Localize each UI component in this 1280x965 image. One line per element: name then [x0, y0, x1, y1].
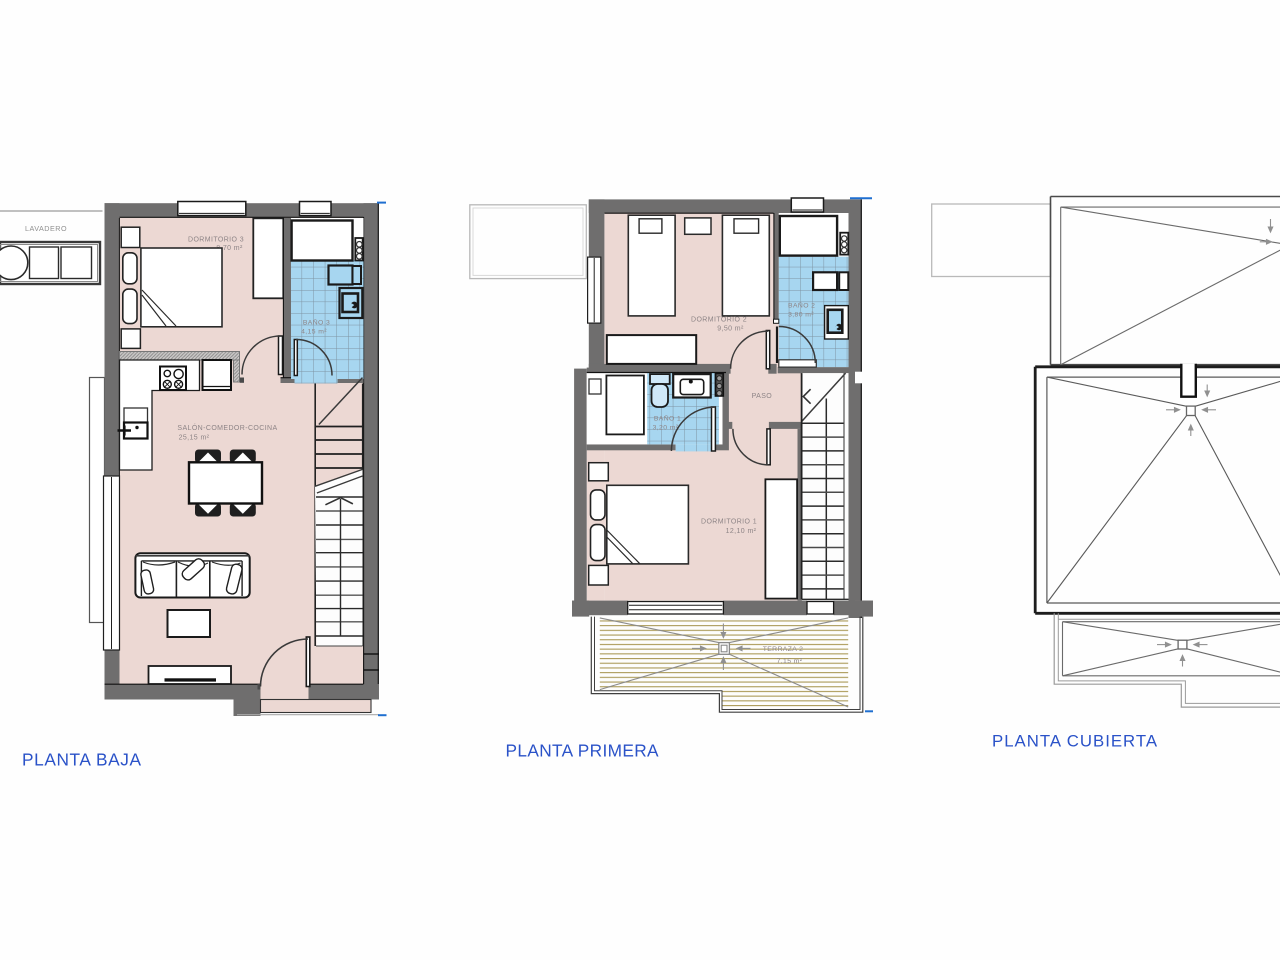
svg-text:DORMITORIO 1: DORMITORIO 1	[701, 519, 757, 526]
svg-text:DORMITORIO 3: DORMITORIO 3	[188, 237, 244, 244]
svg-text:4,15 m²: 4,15 m²	[301, 329, 327, 336]
svg-text:BAÑO 3: BAÑO 3	[303, 318, 330, 327]
svg-text:PLANTA BAJA: PLANTA BAJA	[22, 749, 142, 769]
svg-text:PLANTA CUBIERTA: PLANTA CUBIERTA	[992, 731, 1158, 750]
svg-text:9,50 m²: 9,50 m²	[717, 326, 744, 333]
svg-text:25,15 m²: 25,15 m²	[179, 435, 210, 442]
svg-text:3,80 m²: 3,80 m²	[788, 312, 814, 319]
svg-text:SALÓN-COMEDOR-COCINA: SALÓN-COMEDOR-COCINA	[177, 423, 277, 432]
svg-text:3,20 m²: 3,20 m²	[653, 425, 679, 432]
svg-text:PLANTA PRIMERA: PLANTA PRIMERA	[506, 740, 660, 760]
svg-text:TERRAZA 2: TERRAZA 2	[763, 646, 804, 653]
svg-text:LAVADERO: LAVADERO	[25, 224, 67, 233]
svg-text:BAÑO 1: BAÑO 1	[654, 414, 681, 423]
svg-text:12,10 m²: 12,10 m²	[726, 528, 757, 535]
svg-text:BAÑO 2: BAÑO 2	[788, 301, 815, 310]
svg-text:7,15 m²: 7,15 m²	[777, 658, 803, 665]
svg-text:PASO: PASO	[752, 393, 773, 400]
svg-text:DORMITORIO 2: DORMITORIO 2	[691, 317, 747, 324]
